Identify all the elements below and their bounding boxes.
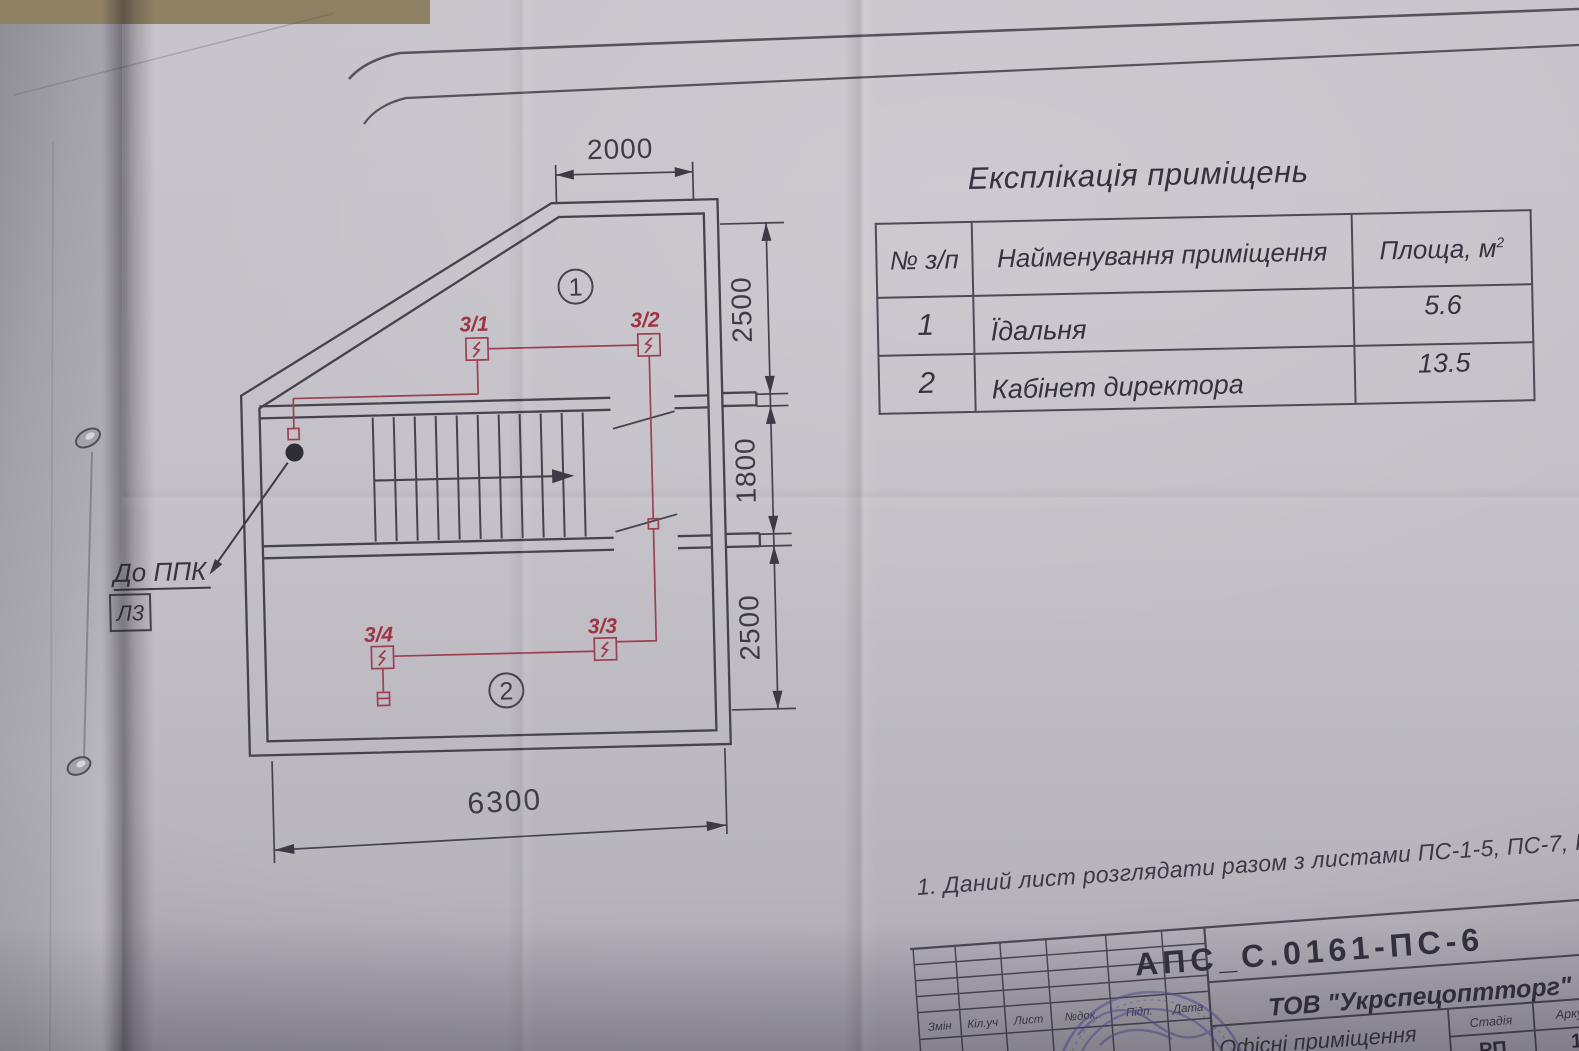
dim-arrow <box>706 821 726 831</box>
rev-col-zmin: Змін <box>928 1020 953 1034</box>
photo-of-drawing-sheet: 2000 2500 1800 2500 630 <box>0 0 1579 1051</box>
detector-icon-3-4 <box>371 646 394 669</box>
col-header-num: № з/п <box>876 222 973 298</box>
detector-label-3-3: 3/3 <box>588 615 618 639</box>
dim-arrow <box>675 167 693 177</box>
detector-icon-3-2 <box>638 334 661 357</box>
dim-arrow <box>556 170 574 180</box>
room-1-number: 1 <box>568 273 583 301</box>
col-header-name: Найменування приміщення <box>971 214 1353 296</box>
document-number: АПС_С.0161-ПС-6 <box>1133 921 1485 983</box>
fold-crease <box>122 486 1579 508</box>
stage-value: РП <box>1478 1038 1507 1051</box>
leader-arrowhead <box>209 559 222 575</box>
round-stamp <box>1040 975 1300 1051</box>
binder-prong-bottom <box>65 754 94 779</box>
dimension-top <box>556 162 694 204</box>
explication-section: Експлікація приміщень № з/п Найменування… <box>873 149 1538 415</box>
row-1-name: Їдальня <box>973 288 1354 354</box>
header-row: № з/п Найменування приміщення Площа, м2 <box>876 210 1532 298</box>
detector-icon-3-3 <box>594 638 617 661</box>
rev-col-kiluch: Кіл.уч <box>967 1017 999 1031</box>
area-superscript: 2 <box>1496 234 1504 250</box>
leader-line <box>210 463 291 570</box>
detector-label-3-2: 3/2 <box>630 309 660 333</box>
row-1-area: 5.6 <box>1353 284 1533 346</box>
fold-crease <box>844 0 876 1051</box>
col-header-area: Площа, м2 <box>1352 210 1533 288</box>
row-2-num: 2 <box>878 354 975 414</box>
row-2-name: Кабінет директора <box>974 346 1355 412</box>
dim-top-value: 2000 <box>587 133 654 166</box>
dim-arrow <box>274 844 294 854</box>
table-row: 2 Кабінет директора 13.5 <box>878 342 1534 414</box>
junction-point <box>285 443 303 461</box>
detector-label-3-1: 3/1 <box>459 313 489 337</box>
detector-label-3-4: 3/4 <box>364 623 394 647</box>
left-page-lines <box>14 13 335 1051</box>
sheet-label: Аркуш <box>1554 1005 1579 1022</box>
dim-right-top-value: 2500 <box>725 276 758 343</box>
alarm-wiring <box>286 345 663 708</box>
fold-crease <box>508 0 536 1051</box>
explication-table: № з/п Найменування приміщення Площа, м2 … <box>875 209 1536 415</box>
company-name: ТОВ "Укрспецоптторг" <box>1267 972 1574 1022</box>
sheet-value: 1 <box>1570 1030 1579 1051</box>
stage-label: Стадія <box>1469 1013 1513 1030</box>
binding-shadow <box>102 0 154 1051</box>
area-label: Площа, м <box>1379 232 1497 264</box>
row-2-area: 13.5 <box>1354 342 1534 404</box>
row-1-num: 1 <box>877 296 974 356</box>
dim-right-bottom-value: 2500 <box>733 594 766 661</box>
binder-prong-top <box>73 425 104 452</box>
detector-icon-3-1 <box>466 338 489 361</box>
